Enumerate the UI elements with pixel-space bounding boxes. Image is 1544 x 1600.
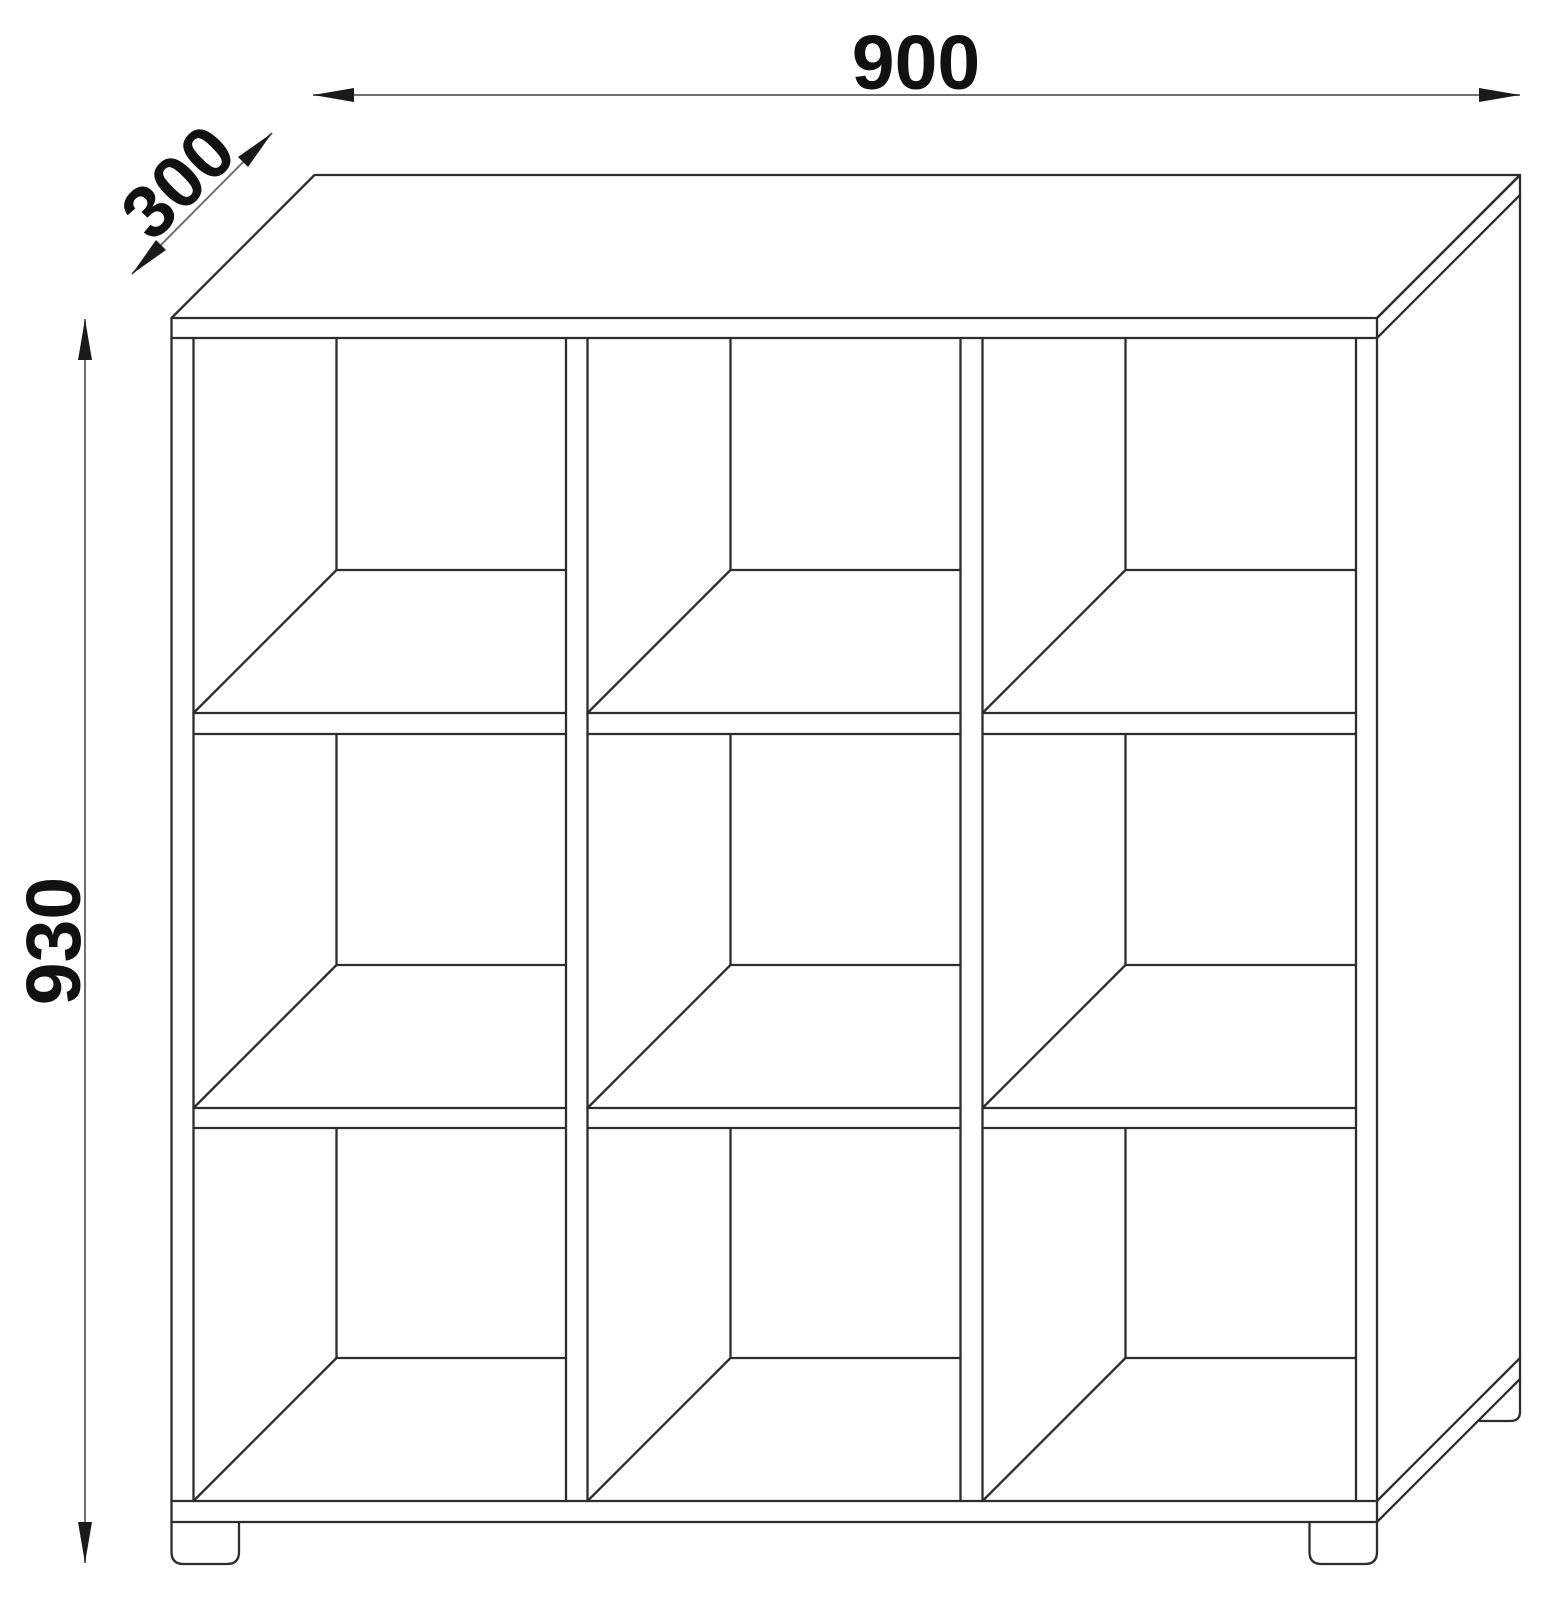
svg-text:930: 930 — [11, 877, 97, 1005]
svg-text:900: 900 — [852, 20, 980, 106]
